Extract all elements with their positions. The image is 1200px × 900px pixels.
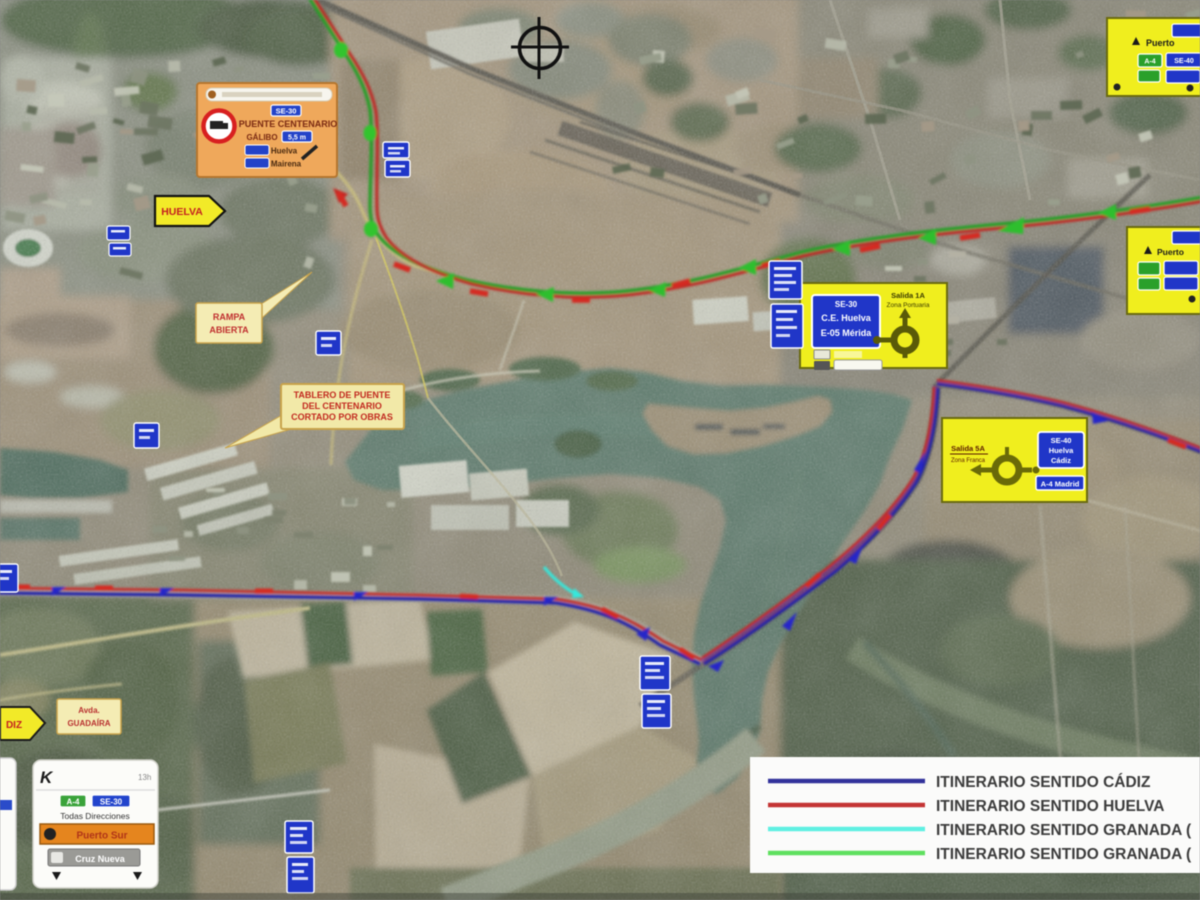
svg-text:Salida 1A: Salida 1A — [891, 291, 925, 300]
svg-text:Salida 5A: Salida 5A — [951, 444, 985, 453]
svg-text:Puerto: Puerto — [1157, 247, 1184, 257]
svg-text:E-05 Mérida: E-05 Mérida — [821, 328, 873, 338]
svg-text:Huelva: Huelva — [271, 147, 298, 156]
svg-text:ITINERARIO SENTIDO HUELVA: ITINERARIO SENTIDO HUELVA — [936, 798, 1165, 815]
svg-text:Mairena: Mairena — [271, 160, 302, 169]
svg-text:Cádiz: Cádiz — [1051, 456, 1071, 465]
svg-text:ITINERARIO SENTIDO CÁDIZ: ITINERARIO SENTIDO CÁDIZ — [936, 774, 1151, 791]
svg-text:A-4 Madrid: A-4 Madrid — [1041, 480, 1080, 489]
svg-text:Puerto Sur: Puerto Sur — [76, 831, 127, 842]
svg-text:Zona Portuaria: Zona Portuaria — [887, 302, 930, 309]
svg-text:5,5 m: 5,5 m — [288, 135, 306, 142]
svg-text:13h: 13h — [138, 773, 151, 782]
svg-text:SE-30: SE-30 — [276, 107, 297, 116]
svg-text:ITINERARIO SENTIDO GRANADA (: ITINERARIO SENTIDO GRANADA ( — [936, 822, 1192, 839]
svg-text:ITINERARIO SENTIDO GRANADA (: ITINERARIO SENTIDO GRANADA ( — [936, 846, 1192, 863]
svg-text:A-4: A-4 — [1144, 59, 1155, 66]
svg-text:Cruz Nueva: Cruz Nueva — [75, 854, 126, 864]
svg-text:Zona Franca: Zona Franca — [951, 458, 986, 464]
svg-text:GUADAÍRA: GUADAÍRA — [67, 719, 110, 728]
svg-text:GÁLIBO: GÁLIBO — [246, 133, 277, 142]
svg-text:SE-40: SE-40 — [1174, 58, 1194, 65]
svg-text:DEL CENTENARIO: DEL CENTENARIO — [302, 401, 382, 411]
svg-text:A-4: A-4 — [67, 798, 80, 807]
svg-text:SE-30: SE-30 — [100, 798, 123, 807]
svg-text:Avda.: Avda. — [78, 706, 100, 715]
svg-text:C.E. Huelva: C.E. Huelva — [821, 313, 872, 323]
svg-text:Puerto: Puerto — [1146, 38, 1175, 48]
svg-text:Huelva: Huelva — [1049, 446, 1074, 455]
svg-text:RAMPA: RAMPA — [213, 312, 246, 322]
svg-text:HUELVA: HUELVA — [161, 206, 203, 218]
svg-text:ABIERTA: ABIERTA — [209, 325, 249, 335]
svg-text:PUENTE CENTENARIO: PUENTE CENTENARIO — [239, 119, 338, 129]
svg-text:DIZ: DIZ — [6, 720, 22, 731]
svg-text:CORTADO POR OBRAS: CORTADO POR OBRAS — [291, 412, 393, 422]
svg-text:TABLERO DE PUENTE: TABLERO DE PUENTE — [294, 390, 391, 400]
svg-text:SE-40: SE-40 — [1051, 436, 1072, 445]
svg-text:Todas Direcciones: Todas Direcciones — [60, 811, 129, 821]
svg-text:K: K — [40, 768, 54, 787]
svg-text:SE-30: SE-30 — [835, 300, 858, 309]
